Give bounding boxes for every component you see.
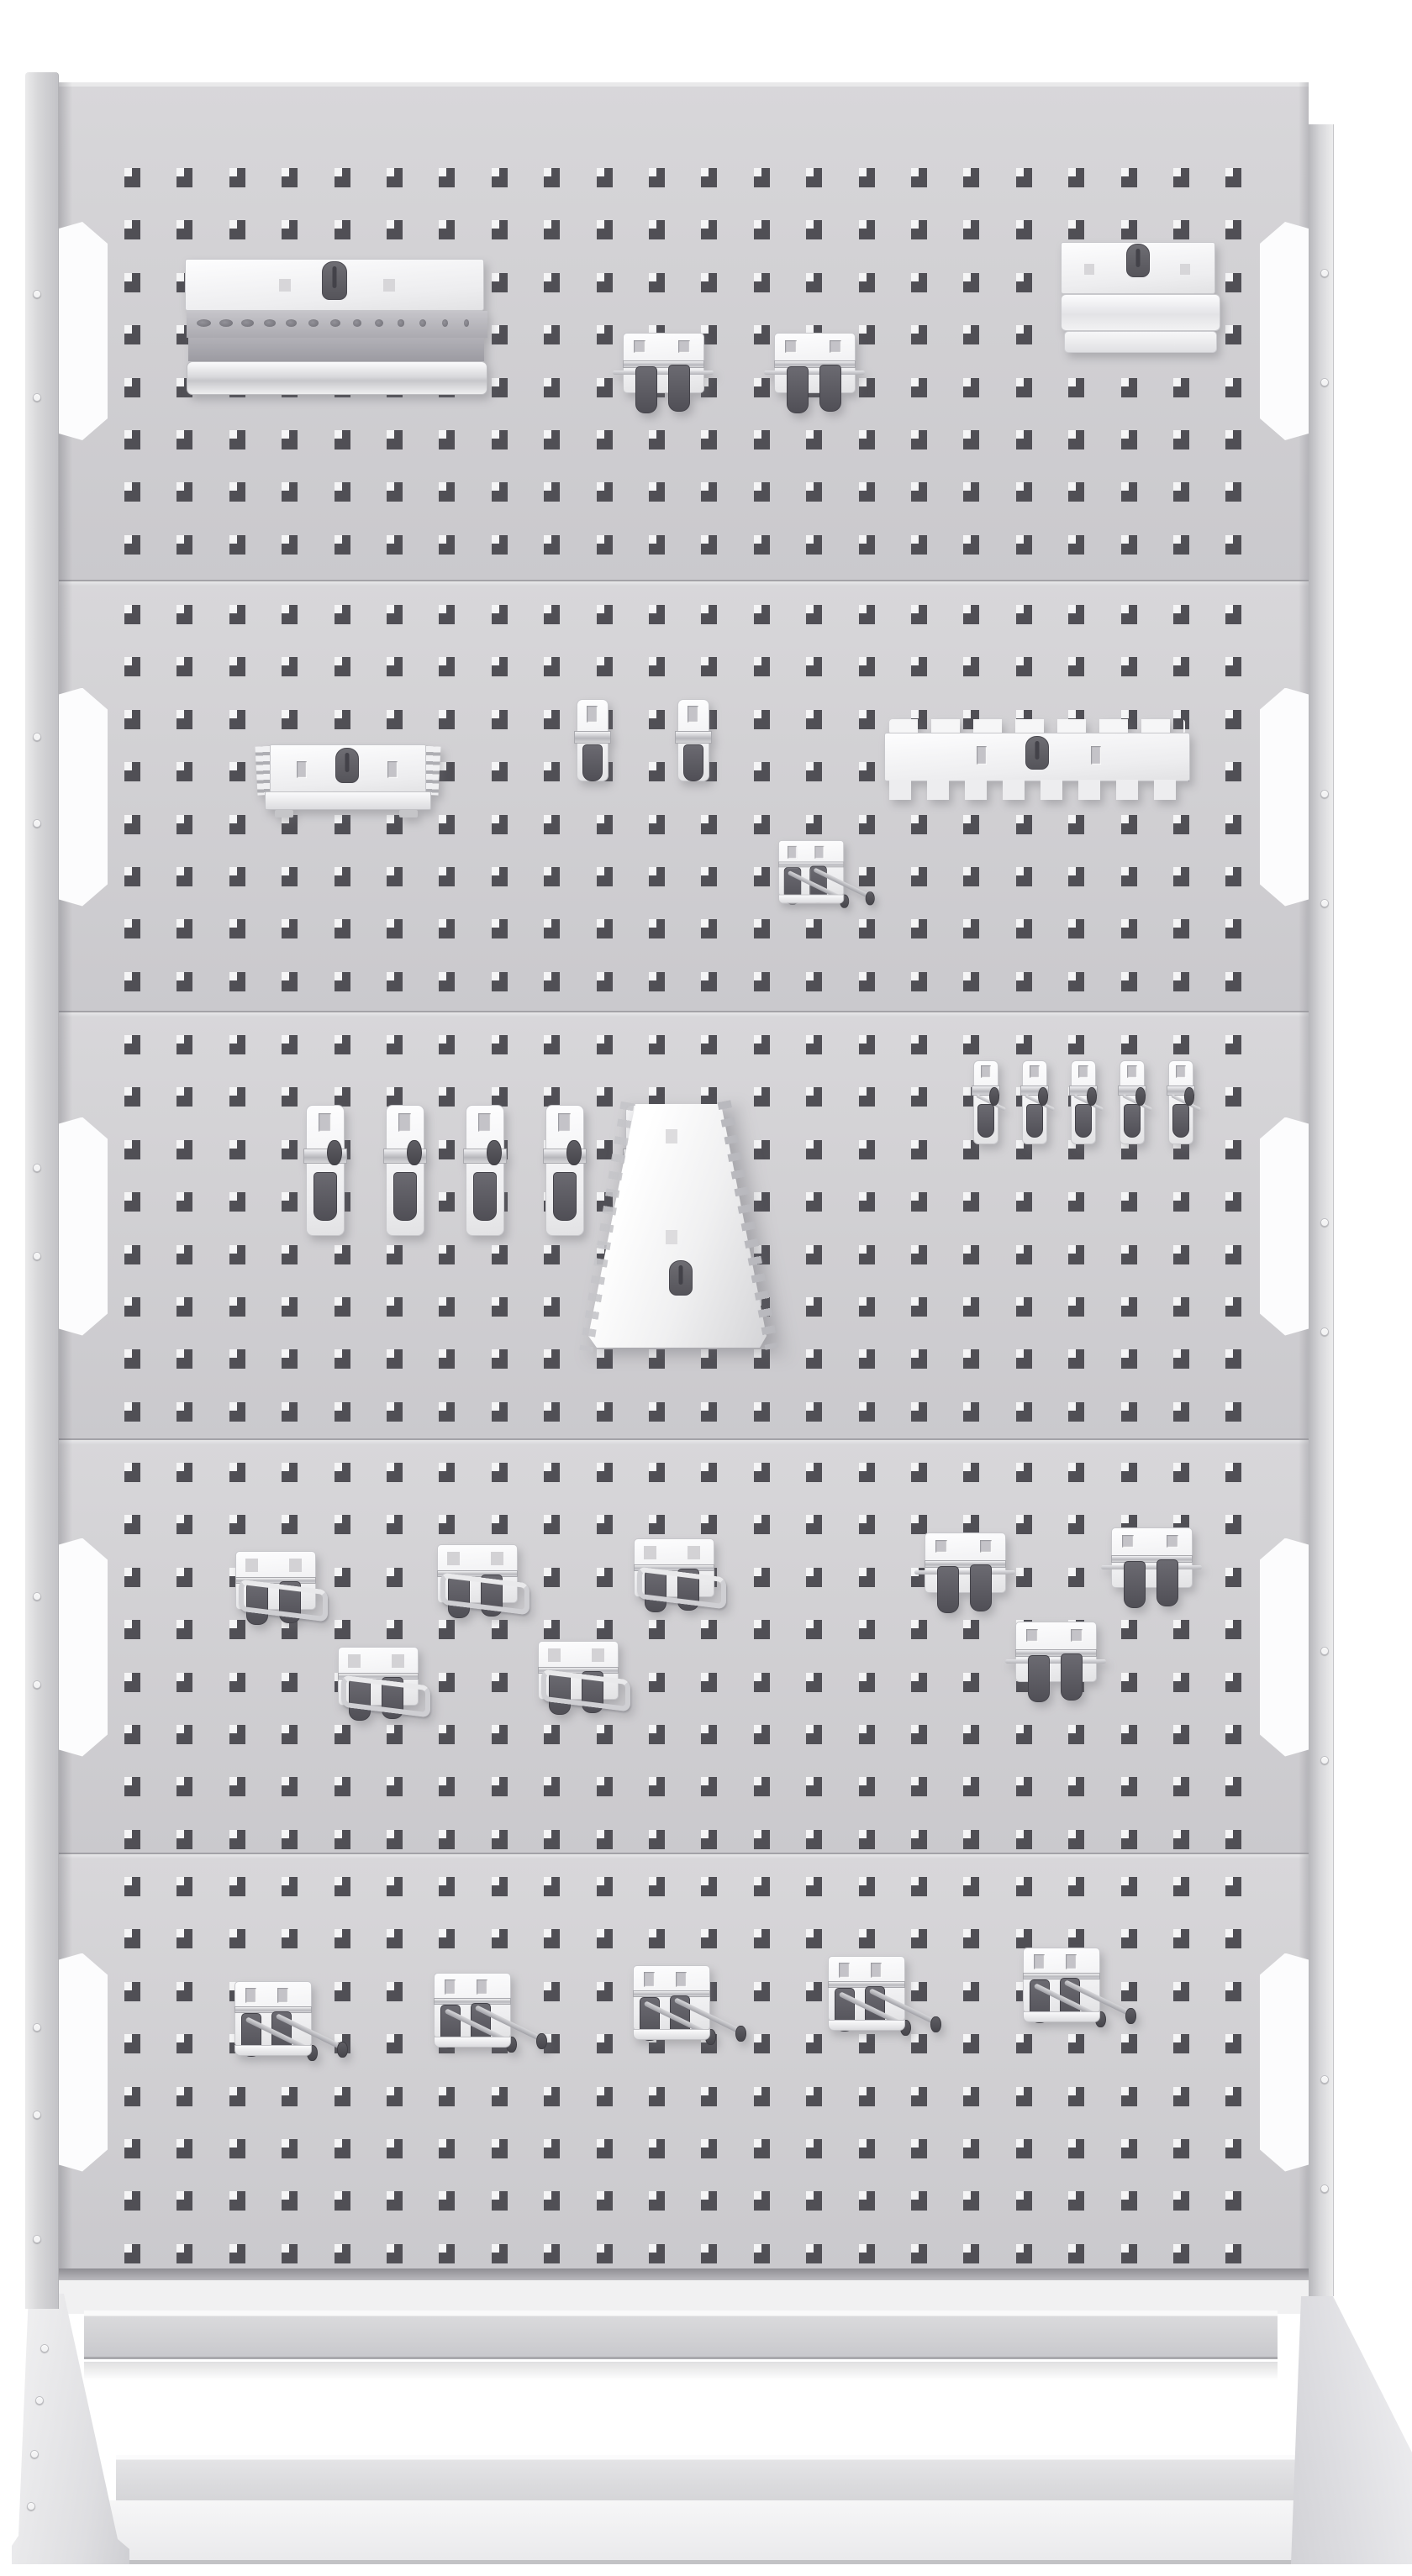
- perforation-hole: [806, 972, 822, 991]
- perforation-hole: [176, 430, 192, 449]
- perforation-hole: [806, 1620, 822, 1639]
- perforation-hole: [806, 1929, 822, 1948]
- perforation-hole: [1068, 2139, 1084, 2158]
- perforation-hole: [176, 2034, 192, 2053]
- perforation-hole: [806, 1673, 822, 1692]
- perforation-hole: [1121, 1349, 1137, 1369]
- perforation-hole: [492, 1463, 508, 1482]
- perforation-hole: [1225, 972, 1241, 991]
- perforation-hole: [492, 1830, 508, 1849]
- perforation-hole: [492, 710, 508, 729]
- perforation-hole: [1121, 972, 1137, 991]
- perforation-hole: [544, 1877, 560, 1896]
- perforation-hole: [963, 220, 979, 239]
- perforation-hole: [701, 220, 717, 239]
- perforation-hole: [1173, 2139, 1189, 2158]
- perforation-hole: [229, 1725, 245, 1744]
- perforation-hole: [544, 762, 560, 781]
- perforation-hole: [859, 1349, 875, 1369]
- perforation-hole: [176, 762, 192, 781]
- perforation-hole: [492, 1402, 508, 1422]
- perforation-hole: [649, 168, 665, 187]
- perforation-hole: [859, 919, 875, 938]
- perforation-hole: [282, 605, 298, 624]
- perforation-hole: [1068, 1245, 1084, 1264]
- wire-loop-hook: [538, 1641, 632, 1727]
- perforation-hole: [1121, 1777, 1137, 1796]
- perforation-hole: [387, 430, 403, 449]
- perforation-hole: [1225, 2191, 1241, 2211]
- perforation-hole: [492, 1877, 508, 1896]
- perforation-hole: [176, 1297, 192, 1317]
- perforation-hole: [806, 1877, 822, 1896]
- single-tool-clip: [1168, 1060, 1195, 1146]
- perforation-hole: [439, 1877, 455, 1896]
- perforation-hole: [1068, 657, 1084, 676]
- perforation-hole: [911, 1140, 927, 1159]
- perforation-hole: [1225, 1035, 1241, 1054]
- perforation-hole: [1016, 1463, 1032, 1482]
- perforation-hole: [439, 1463, 455, 1482]
- perforation-hole: [335, 972, 350, 991]
- perforation-hole: [335, 1349, 350, 1369]
- perforation-hole: [492, 815, 508, 834]
- perforation-hole: [963, 2139, 979, 2158]
- perforation-hole: [1173, 1192, 1189, 1212]
- perforation-hole: [649, 220, 665, 239]
- perforation-hole: [1068, 972, 1084, 991]
- perforation-hole: [439, 168, 455, 187]
- under-rack-shadow: [59, 2268, 1309, 2280]
- left-upright-post: [25, 72, 59, 2309]
- perforation-hole: [544, 325, 560, 344]
- perforation-hole: [282, 1087, 298, 1107]
- perforation-hole: [387, 1877, 403, 1896]
- perforation-hole: [1016, 815, 1032, 834]
- perforation-hole: [701, 2139, 717, 2158]
- perforation-hole: [492, 762, 508, 781]
- perforation-hole: [911, 168, 927, 187]
- perforation-hole: [1016, 1568, 1032, 1587]
- double-tool-clip: [623, 333, 704, 419]
- perforation-hole: [754, 378, 770, 397]
- perforation-hole: [859, 1620, 875, 1639]
- perforation-hole: [124, 273, 140, 292]
- twin-prong-hook: [1023, 1948, 1134, 2042]
- perforation-hole: [124, 168, 140, 187]
- perforation-hole: [229, 605, 245, 624]
- perforation-hole: [176, 1192, 192, 1212]
- perforation-hole: [1068, 1725, 1084, 1744]
- perforation-hole: [492, 657, 508, 676]
- perforation-hole: [911, 1620, 927, 1639]
- perforation-hole: [754, 1620, 770, 1639]
- perforation-hole: [1121, 1402, 1137, 1422]
- perforation-hole: [911, 1877, 927, 1896]
- perforation-hole: [859, 168, 875, 187]
- perforation-hole: [649, 815, 665, 834]
- post-bolt: [33, 819, 41, 828]
- perforation-hole: [911, 1297, 927, 1317]
- perforation-hole: [439, 430, 455, 449]
- perforation-hole: [124, 325, 140, 344]
- perforation-hole: [806, 710, 822, 729]
- perforation-hole: [649, 2087, 665, 2106]
- perforation-hole: [911, 1087, 927, 1107]
- perforation-hole: [124, 2034, 140, 2053]
- perforation-hole: [229, 762, 245, 781]
- post-bolt: [1320, 899, 1329, 907]
- perforation-hole: [335, 1515, 350, 1534]
- perforation-hole: [439, 535, 455, 555]
- perforation-hole: [1121, 1725, 1137, 1744]
- perforation-hole: [806, 273, 822, 292]
- perforation-hole: [1016, 1725, 1032, 1744]
- perforation-hole: [806, 1777, 822, 1796]
- perforation-hole: [176, 482, 192, 502]
- perforation-hole: [649, 1673, 665, 1692]
- perforation-hole: [387, 1568, 403, 1587]
- perforation-hole: [963, 482, 979, 502]
- perforation-hole: [229, 1349, 245, 1369]
- perforation-hole: [754, 482, 770, 502]
- perforation-hole: [806, 535, 822, 555]
- single-tool-clip: [386, 1105, 428, 1238]
- perforation-hole: [282, 2191, 298, 2211]
- perforation-hole: [649, 482, 665, 502]
- perforation-hole: [963, 1192, 979, 1212]
- twin-prong-hook: [778, 840, 872, 920]
- perforation-hole: [701, 168, 717, 187]
- perforation-hole: [282, 2087, 298, 2106]
- perforation-hole: [911, 1402, 927, 1422]
- perforation-hole: [859, 972, 875, 991]
- perforation-hole: [544, 168, 560, 187]
- perforation-hole: [282, 2244, 298, 2263]
- perforation-hole: [1225, 1463, 1241, 1482]
- perforation-hole: [754, 2034, 770, 2053]
- perforation-hole: [124, 1515, 140, 1534]
- perforation-hole: [1068, 2244, 1084, 2263]
- perforation-hole: [439, 1777, 455, 1796]
- perforation-hole: [911, 867, 927, 886]
- perforation-hole: [124, 1777, 140, 1796]
- perforation-hole: [754, 1982, 770, 2001]
- perforation-hole: [1173, 1035, 1189, 1054]
- perforation-hole: [176, 972, 192, 991]
- perforation-hole: [1225, 482, 1241, 502]
- perforation-hole: [439, 1515, 455, 1534]
- perforation-hole: [597, 430, 613, 449]
- perforation-hole: [176, 1777, 192, 1796]
- perforation-hole: [1225, 430, 1241, 449]
- perforation-hole: [1068, 605, 1084, 624]
- perforation-hole: [1121, 1297, 1137, 1317]
- panel-edge-cutout-right: [1260, 222, 1309, 440]
- perforation-hole: [229, 2139, 245, 2158]
- perforation-hole: [754, 762, 770, 781]
- perforation-hole: [963, 1929, 979, 1948]
- perforation-hole: [1016, 220, 1032, 239]
- perforation-hole: [597, 2244, 613, 2263]
- perforation-hole: [963, 1982, 979, 2001]
- perforation-hole: [124, 1297, 140, 1317]
- perforation-hole: [229, 972, 245, 991]
- perforation-hole: [1173, 430, 1189, 449]
- perforation-hole: [544, 220, 560, 239]
- perforation-hole: [492, 2087, 508, 2106]
- perforation-hole: [1173, 1673, 1189, 1692]
- perforation-hole: [911, 378, 927, 397]
- perforation-hole: [1225, 710, 1241, 729]
- perforation-hole: [1016, 430, 1032, 449]
- single-tool-clip: [1022, 1060, 1049, 1146]
- perforation-hole: [124, 220, 140, 239]
- perforation-hole: [1225, 1192, 1241, 1212]
- perforation-hole: [1173, 605, 1189, 624]
- perforation-hole: [859, 273, 875, 292]
- perforation-hole: [806, 1568, 822, 1587]
- perforation-hole: [124, 2244, 140, 2263]
- perforation-hole: [963, 605, 979, 624]
- serrated-bracket-holder: [256, 744, 440, 822]
- perforation-hole: [597, 273, 613, 292]
- perforation-hole: [649, 605, 665, 624]
- perforation-hole: [806, 815, 822, 834]
- perforation-hole: [859, 1140, 875, 1159]
- perforation-hole: [1121, 867, 1137, 886]
- perforation-hole: [124, 2191, 140, 2211]
- perforation-hole: [229, 1140, 245, 1159]
- base-back-strip: [59, 2280, 1309, 2314]
- perforation-hole: [1121, 378, 1137, 397]
- perforation-hole: [911, 1830, 927, 1849]
- perforation-hole: [911, 1929, 927, 1948]
- perforation-hole: [335, 535, 350, 555]
- perforation-hole: [229, 535, 245, 555]
- perforation-hole: [859, 1877, 875, 1896]
- post-bolt: [33, 1164, 41, 1172]
- single-tool-clip: [577, 699, 610, 783]
- perforation-hole: [806, 2244, 822, 2263]
- perforation-hole: [1225, 1245, 1241, 1264]
- perforation-hole: [282, 1349, 298, 1369]
- perforation-hole: [1225, 1568, 1241, 1587]
- perforation-hole: [859, 657, 875, 676]
- perforation-hole: [649, 1349, 665, 1369]
- perforation-hole: [1016, 325, 1032, 344]
- post-bolt: [1320, 790, 1329, 798]
- perforation-hole: [124, 1982, 140, 2001]
- panel-edge-cutout-right: [1260, 1117, 1309, 1336]
- perforation-hole: [544, 1777, 560, 1796]
- perforation-hole: [282, 168, 298, 187]
- perforation-hole: [963, 815, 979, 834]
- perforation-hole: [1068, 1402, 1084, 1422]
- perforation-hole: [387, 2139, 403, 2158]
- perforation-hole: [597, 867, 613, 886]
- perforation-hole: [1016, 919, 1032, 938]
- base-plinth-front: [104, 2500, 1392, 2564]
- perforation-hole: [1225, 1877, 1241, 1896]
- perforation-hole: [754, 1035, 770, 1054]
- perforation-hole: [911, 220, 927, 239]
- perforation-hole: [124, 1929, 140, 1948]
- perforation-hole: [124, 1877, 140, 1896]
- perforation-hole: [1121, 2087, 1137, 2106]
- perforation-hole: [124, 378, 140, 397]
- perforation-hole: [439, 605, 455, 624]
- perforation-hole: [229, 1830, 245, 1849]
- perforation-hole: [439, 762, 455, 781]
- perforation-hole: [439, 710, 455, 729]
- perforation-hole: [806, 919, 822, 938]
- perforation-hole: [963, 1515, 979, 1534]
- perforation-hole: [544, 273, 560, 292]
- perforation-hole: [597, 657, 613, 676]
- perforation-hole: [1068, 1297, 1084, 1317]
- perforation-hole: [911, 1515, 927, 1534]
- perforation-hole: [1225, 2244, 1241, 2263]
- perforation-hole: [1225, 325, 1241, 344]
- perforation-hole: [597, 1035, 613, 1054]
- perforation-hole: [911, 972, 927, 991]
- perforation-hole: [176, 1929, 192, 1948]
- double-tool-clip: [774, 333, 856, 419]
- post-bolt: [1320, 1647, 1329, 1655]
- perforation-hole: [597, 220, 613, 239]
- wire-loop-hook: [338, 1647, 432, 1732]
- perforation-hole: [701, 1877, 717, 1896]
- perforation-hole: [754, 273, 770, 292]
- perforation-hole: [492, 1777, 508, 1796]
- saw-holder: [588, 1104, 767, 1349]
- perforation-hole: [1016, 1035, 1032, 1054]
- perforation-hole: [439, 2139, 455, 2158]
- perforation-hole: [387, 1620, 403, 1639]
- perforation-hole: [229, 1777, 245, 1796]
- perforation-hole: [1068, 867, 1084, 886]
- perforation-hole: [859, 2244, 875, 2263]
- perforation-hole: [911, 657, 927, 676]
- post-bolt: [1320, 378, 1329, 386]
- perforation-hole: [544, 1515, 560, 1534]
- perforation-hole: [806, 1515, 822, 1534]
- perforation-hole: [282, 1402, 298, 1422]
- perforation-hole: [806, 1463, 822, 1482]
- perforation-hole: [439, 1673, 455, 1692]
- perforation-hole: [124, 605, 140, 624]
- perforation-hole: [229, 1297, 245, 1317]
- perforation-hole: [492, 1087, 508, 1107]
- perforation-hole: [701, 2244, 717, 2263]
- perforation-hole: [963, 535, 979, 555]
- perforation-hole: [701, 482, 717, 502]
- perforation-hole: [1225, 605, 1241, 624]
- perforation-hole: [1068, 2087, 1084, 2106]
- perforation-hole: [597, 1402, 613, 1422]
- perforation-hole: [1068, 1192, 1084, 1212]
- perforation-hole: [387, 2191, 403, 2211]
- perforation-hole: [544, 2244, 560, 2263]
- perforation-hole: [911, 815, 927, 834]
- perforation-hole: [1173, 1297, 1189, 1317]
- perforation-hole: [1173, 1463, 1189, 1482]
- perforation-hole: [963, 1877, 979, 1896]
- perforation-hole: [754, 815, 770, 834]
- perforation-hole: [544, 605, 560, 624]
- perforation-hole: [806, 482, 822, 502]
- perforation-hole: [492, 1035, 508, 1054]
- perforation-hole: [649, 1463, 665, 1482]
- perforation-hole: [701, 535, 717, 555]
- perforation-hole: [859, 1929, 875, 1948]
- perforation-hole: [439, 2087, 455, 2106]
- perforation-hole: [387, 710, 403, 729]
- perforation-hole: [544, 1568, 560, 1587]
- perforation-hole: [701, 1929, 717, 1948]
- perforation-hole: [176, 1087, 192, 1107]
- perforation-hole: [1016, 378, 1032, 397]
- perforation-hole: [1173, 168, 1189, 187]
- perforation-hole: [1121, 168, 1137, 187]
- single-tool-clip: [677, 699, 711, 783]
- perforation-hole: [649, 273, 665, 292]
- perforation-hole: [439, 1349, 455, 1369]
- perforation-hole: [335, 2087, 350, 2106]
- perforation-hole: [597, 1725, 613, 1744]
- perforation-hole: [911, 1192, 927, 1212]
- perforation-hole: [754, 430, 770, 449]
- perforation-hole: [387, 867, 403, 886]
- perforation-hole: [859, 482, 875, 502]
- perforation-hole: [1068, 482, 1084, 502]
- perforation-hole: [754, 972, 770, 991]
- perforation-hole: [492, 2191, 508, 2211]
- perforation-hole: [597, 815, 613, 834]
- perforation-hole: [859, 1245, 875, 1264]
- perforation-hole: [387, 535, 403, 555]
- right-upright-post: [1309, 124, 1334, 2296]
- perforation-hole: [754, 1568, 770, 1587]
- perforation-hole: [1016, 1830, 1032, 1849]
- perforation-hole: [282, 710, 298, 729]
- perforation-hole: [387, 1402, 403, 1422]
- perforation-hole: [911, 919, 927, 938]
- perforation-hole: [492, 2244, 508, 2263]
- perforation-hole: [229, 1929, 245, 1948]
- perforation-hole: [859, 430, 875, 449]
- perforation-hole: [492, 1297, 508, 1317]
- perforation-hole: [439, 815, 455, 834]
- perforation-hole: [439, 2244, 455, 2263]
- perforation-hole: [806, 2191, 822, 2211]
- perforation-hole: [701, 657, 717, 676]
- perforation-hole: [597, 1515, 613, 1534]
- perforation-hole: [1016, 972, 1032, 991]
- post-bolt: [33, 2235, 41, 2243]
- perforation-hole: [806, 1140, 822, 1159]
- perforation-hole: [859, 378, 875, 397]
- perforation-hole: [649, 867, 665, 886]
- perforation-hole: [597, 1830, 613, 1849]
- perforation-hole: [1121, 1192, 1137, 1212]
- perforation-hole: [1016, 1245, 1032, 1264]
- perforation-hole: [859, 1515, 875, 1534]
- perforation-hole: [911, 1673, 927, 1692]
- perforation-hole: [492, 482, 508, 502]
- perforation-hole: [806, 168, 822, 187]
